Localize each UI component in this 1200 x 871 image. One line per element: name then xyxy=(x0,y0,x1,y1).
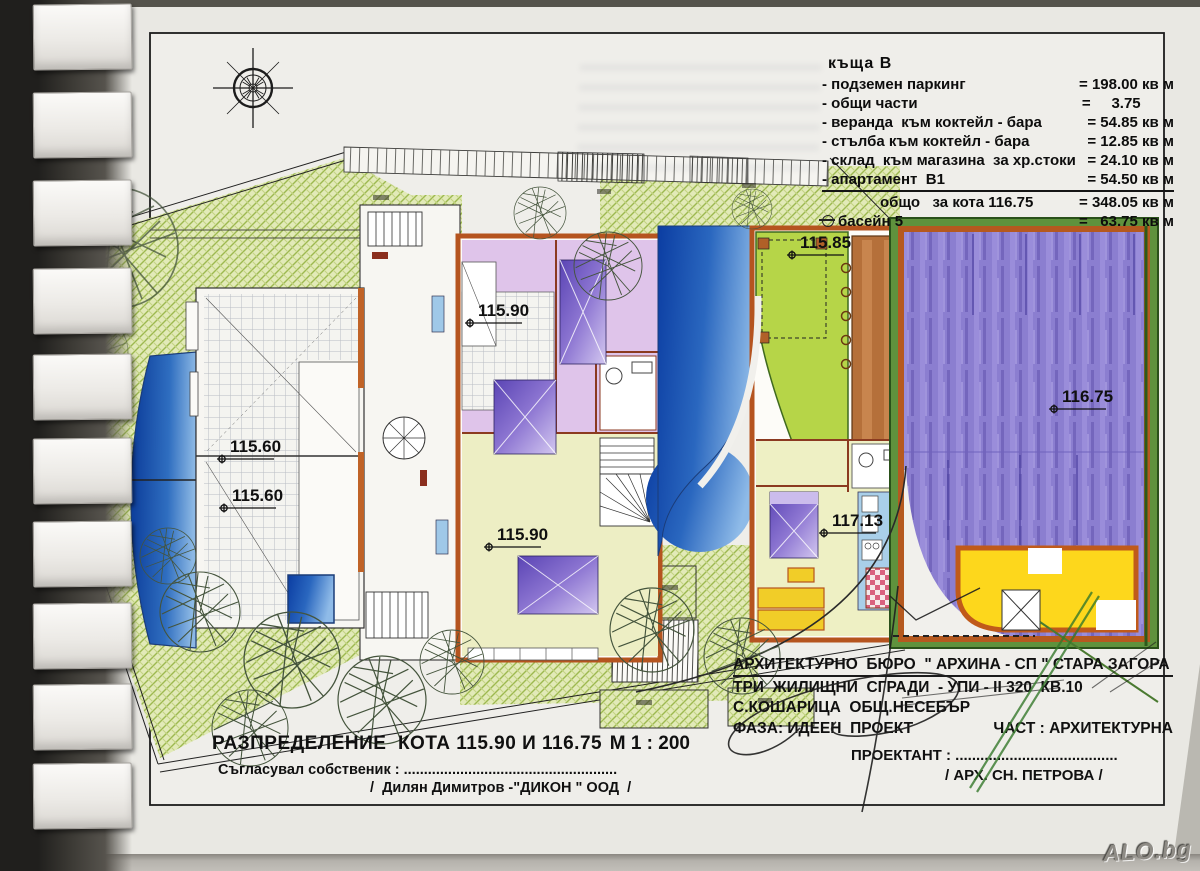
legend-row-label: общо за кота 116.75 xyxy=(822,193,1033,212)
elevation-label-6: 116.75 xyxy=(1062,387,1113,406)
project-phase: ФАЗА: ИДЕЕН ПРОЕКТ xyxy=(733,720,913,738)
title-block-right: АРХИТЕКТУРНО БЮРО " АРХИНА - СП " СТАРА … xyxy=(733,656,1173,784)
level-mark-icon xyxy=(822,215,834,227)
legend-row-label: - стълба към коктейл - бара xyxy=(822,132,1029,151)
designer-label: ПРОЕКТАНТ : ............................… xyxy=(851,747,1173,764)
legend-row-label: - подземен паркинг xyxy=(822,75,966,94)
scan-edge-top xyxy=(0,0,1200,7)
project-location: С.КОШАРИЦА ОБЩ.НЕСЕБЪР xyxy=(733,699,1173,717)
legend-row: - склад към магазина за хр.стоки = 24.10… xyxy=(822,151,1174,170)
legend-row-value: = 63.75 кв м xyxy=(1079,212,1174,231)
legend-row-label: - веранда към коктейл - бара xyxy=(822,113,1042,132)
legend-row-label: басейн 5 xyxy=(822,212,903,231)
scan-edge-bottom xyxy=(0,854,1200,871)
drawing-title: РАЗПРЕДЕЛЕНИЕ КОТА 115.90 И 116.75 xyxy=(212,733,602,755)
binding-tooth xyxy=(33,437,133,504)
bureau-name: АРХИТЕКТУРНО БЮРО " АРХИНА - СП " СТАРА … xyxy=(733,656,1173,677)
legend-row: - общи части = 3.75 xyxy=(822,94,1174,113)
binding-tooth xyxy=(33,91,133,158)
project-name: ТРИ ЖИЛИЩНИ СГРАДИ - УПИ - II 320 КВ.10 xyxy=(733,679,1173,697)
legend-row-value: = 198.00 кв м xyxy=(1079,75,1174,94)
bar-room xyxy=(958,548,1136,630)
scanned-plan-page: 115.60 115.60 115.90 115.90 115.85 116.7… xyxy=(0,0,1200,871)
legend-row-value: = 12.85 кв м xyxy=(1087,132,1174,151)
legend-row: - стълба към коктейл - бара = 12.85 кв м xyxy=(822,132,1174,151)
legend-row-value: = 3.75 xyxy=(1082,94,1174,113)
area-legend: къща В - подземен паркинг = 198.00 кв м … xyxy=(822,55,1174,231)
legend-row-label: - общи части xyxy=(822,94,918,113)
legend-row-total: общо за кота 116.75 = 348.05 кв м xyxy=(822,190,1174,212)
legend-row-value: = 24.10 кв м xyxy=(1087,151,1174,170)
elevation-label-2: 115.60 xyxy=(232,486,283,505)
legend-row-value: = 54.50 кв м xyxy=(1087,170,1174,189)
binding-tooth xyxy=(33,353,133,420)
pool-main xyxy=(646,226,758,556)
binding-tooth xyxy=(33,602,133,669)
project-part: ЧАСТ : АРХИТЕКТУРНА xyxy=(993,720,1173,738)
legend-row: - апартамент В1 = 54.50 кв м xyxy=(822,170,1174,189)
binding-tooth xyxy=(33,179,133,246)
watermark: ALO.bg xyxy=(1102,836,1192,868)
binding-tooth xyxy=(33,520,133,587)
spiral-binding xyxy=(0,0,132,871)
legend-row: басейн 5 = 63.75 кв м xyxy=(822,212,1174,231)
legend-row: - подземен паркинг = 198.00 кв м xyxy=(822,75,1174,94)
house-right xyxy=(752,228,908,640)
binding-tooth xyxy=(33,3,133,70)
elevation-label-3: 115.90 xyxy=(478,301,529,320)
legend-row: - веранда към коктейл - бара = 54.85 кв … xyxy=(822,113,1174,132)
ghost-bleed-text xyxy=(576,64,822,174)
elevation-label-7: 117.13 xyxy=(832,511,883,530)
binding-tooth xyxy=(33,683,133,750)
approved-by-name: / Дилян Димитров -"ДИКОН " ООД / xyxy=(370,780,690,796)
legend-row-label: - апартамент В1 xyxy=(822,170,945,189)
legend-row-label: - склад към магазина за хр.стоки xyxy=(822,151,1076,170)
elevation-label-5: 115.85 xyxy=(800,233,851,252)
designer-name: / АРХ. СН. ПЕТРОВА / xyxy=(945,767,1173,784)
approved-by-label: Съгласувал собственик : ................… xyxy=(218,762,690,778)
binding-tooth xyxy=(33,762,133,829)
legend-title: къща В xyxy=(828,55,1174,73)
house-middle xyxy=(458,236,660,660)
binding-tooth xyxy=(33,267,133,334)
legend-row-value: = 348.05 кв м xyxy=(1079,193,1174,212)
elevation-label-4: 115.90 xyxy=(497,525,548,544)
drawing-scale: М 1 : 200 xyxy=(610,733,690,755)
title-block-left: РАЗПРЕДЕЛЕНИЕ КОТА 115.90 И 116.75 М 1 :… xyxy=(212,733,690,796)
legend-row-value: = 54.85 кв м xyxy=(1087,113,1174,132)
elevation-label-1: 115.60 xyxy=(230,437,281,456)
